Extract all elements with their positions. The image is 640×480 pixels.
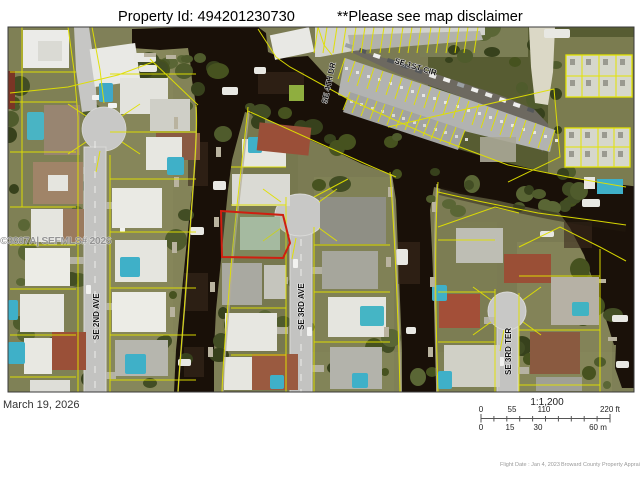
svg-text:Broward County Property Apprai: Broward County Property Appraiser (561, 462, 640, 468)
svg-text:15: 15 (506, 423, 515, 432)
svg-text:SE 3RD AVE: SE 3RD AVE (297, 283, 306, 330)
svg-text:60 m: 60 m (589, 423, 607, 432)
svg-text:110: 110 (538, 405, 551, 414)
svg-text:Property Id: 494201230730: Property Id: 494201230730 (118, 9, 295, 25)
svg-text:0: 0 (479, 423, 484, 432)
svg-text:March 19, 2026: March 19, 2026 (3, 399, 79, 411)
svg-text:**Please see map disclaimer: **Please see map disclaimer (337, 9, 523, 25)
svg-text:30: 30 (534, 423, 543, 432)
svg-text:Flight Date : Jan 4, 2023: Flight Date : Jan 4, 2023 (500, 462, 560, 468)
svg-text:55: 55 (508, 405, 517, 414)
svg-text:SE 3RD TER: SE 3RD TER (504, 328, 513, 375)
svg-text:0: 0 (479, 405, 484, 414)
svg-text:SE 2ND AVE: SE 2ND AVE (92, 293, 101, 340)
svg-text:220 ft: 220 ft (600, 405, 621, 414)
svg-text:©3887A| SEFMLS# 2026: ©3887A| SEFMLS# 2026 (0, 235, 112, 247)
